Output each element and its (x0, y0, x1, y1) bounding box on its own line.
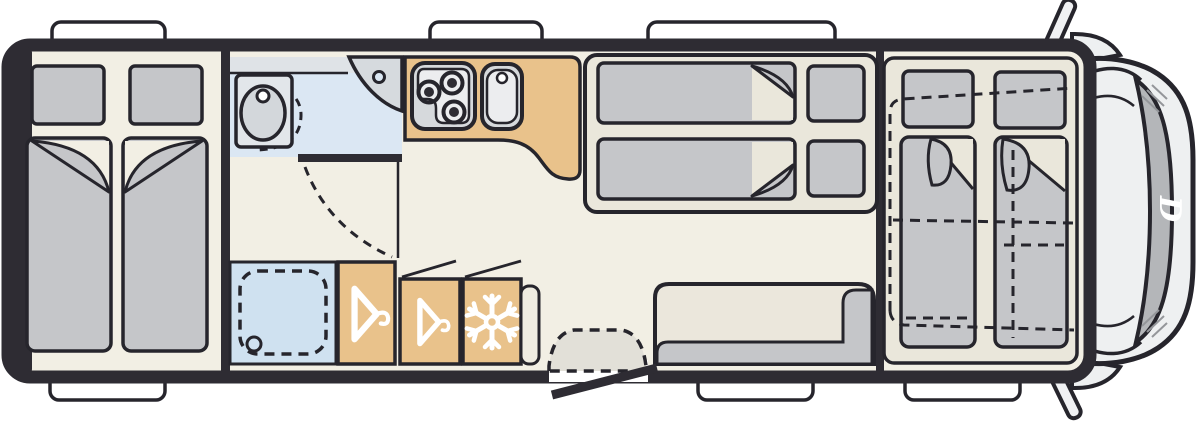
motorhome-floor-plan: D (0, 0, 1200, 422)
toilet-flush-button (257, 90, 269, 102)
floor-plan-canvas: D (0, 0, 1200, 422)
bed-pillow (995, 72, 1065, 128)
kitchen-sink (482, 64, 522, 129)
sink-drain (497, 73, 507, 83)
bed-pillow (130, 66, 202, 124)
entry-step (549, 330, 646, 371)
brand-logo: D (1152, 195, 1187, 222)
refrigerator (463, 279, 521, 364)
front-duvet-right (995, 137, 1067, 347)
stove (412, 63, 475, 129)
bed-pillow (808, 66, 864, 121)
bed-duvet-left (27, 138, 111, 351)
toilet (236, 75, 292, 147)
drop-down-duvet-bottom (598, 139, 795, 199)
bed-pillow (808, 141, 864, 196)
washbasin-drain (374, 72, 385, 83)
wardrobe-2 (400, 279, 460, 364)
bed-duvet-right (123, 138, 207, 351)
side-cabinet (521, 286, 539, 364)
front-duvet-left (901, 137, 975, 347)
bed-pillow (32, 66, 104, 124)
drop-down-duvet-top (598, 63, 795, 123)
wardrobe-1 (338, 262, 395, 364)
bathroom-wall-segment (298, 154, 402, 162)
front-bed-area (884, 58, 1077, 363)
dinette-bench (655, 284, 874, 364)
drop-down-bed (585, 55, 877, 212)
shower-cubicle (230, 262, 336, 364)
